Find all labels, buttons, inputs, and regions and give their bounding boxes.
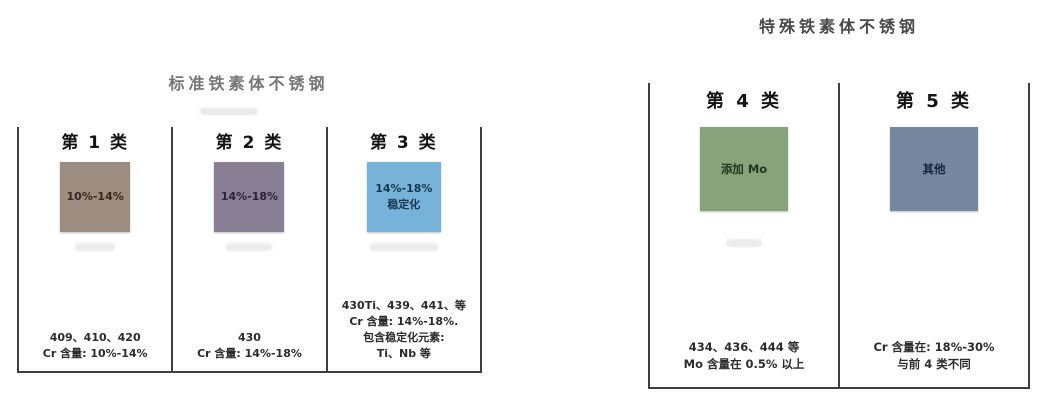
class-4-notes: 434、436、444 等 Mo 含量在 0.5% 以上 xyxy=(653,339,835,374)
note-line: 430 xyxy=(176,330,322,346)
note-line: Cr 含量: 14%-18% xyxy=(176,346,322,362)
class-5-header: 第 5 类 xyxy=(896,83,972,113)
class-4-header: 第 4 类 xyxy=(706,83,782,113)
class-5-notes: Cr 含量在: 18%-30% 与前 4 类不同 xyxy=(843,339,1025,374)
note-line: Cr 含量: 10%-14% xyxy=(22,346,168,362)
faded-text-artifact xyxy=(226,243,272,251)
note-line: 与前 4 类不同 xyxy=(843,356,1025,373)
class-1-color-box: 10%-14% xyxy=(60,162,130,232)
special-ferritic-title: 特殊铁素体不锈钢 xyxy=(648,13,1030,37)
class-2-notes: 430 Cr 含量: 14%-18% xyxy=(176,330,322,362)
note-line: 409、410、420 xyxy=(22,330,168,346)
class-1-box-label: 10%-14% xyxy=(67,189,124,205)
class-1-column: 第 1 类 10%-14% 409、410、420 Cr 含量: 10%-14% xyxy=(19,127,173,371)
class-3-box-label: 稳定化 xyxy=(387,197,420,213)
standard-ferritic-panel: 第 1 类 10%-14% 409、410、420 Cr 含量: 10%-14%… xyxy=(17,127,482,373)
class-3-column: 第 3 类 14%-18% 稳定化 430Ti、439、441、等 Cr 含量:… xyxy=(328,127,480,371)
faded-text-artifact xyxy=(200,108,258,115)
class-1-notes: 409、410、420 Cr 含量: 10%-14% xyxy=(22,330,168,362)
ferritic-stainless-classification-diagram: 标准铁素体不锈钢 第 1 类 10%-14% 409、410、420 Cr 含量… xyxy=(0,0,1042,408)
class-3-notes: 430Ti、439、441、等 Cr 含量: 14%-18%. 包含稳定化元素:… xyxy=(331,298,477,362)
faded-text-artifact xyxy=(75,243,115,251)
note-line: 434、436、444 等 xyxy=(653,339,835,356)
class-3-color-box: 14%-18% 稳定化 xyxy=(367,162,441,232)
note-line: Ti、Nb 等 xyxy=(331,346,477,362)
faded-text-artifact xyxy=(370,243,438,251)
class-3-box-label: 14%-18% xyxy=(375,181,432,197)
note-line: Cr 含量在: 18%-30% xyxy=(843,339,1025,356)
class-2-color-box: 14%-18% xyxy=(214,162,284,232)
class-3-header: 第 3 类 xyxy=(370,127,438,153)
class-5-color-box: 其他 xyxy=(890,127,978,211)
class-4-color-box: 添加 Mo xyxy=(700,127,788,211)
class-4-column: 第 4 类 添加 Mo 434、436、444 等 Mo 含量在 0.5% 以上 xyxy=(650,83,840,387)
note-line: Mo 含量在 0.5% 以上 xyxy=(653,356,835,373)
note-line: 包含稳定化元素: xyxy=(331,330,477,346)
class-1-header: 第 1 类 xyxy=(61,127,129,153)
note-line: Cr 含量: 14%-18%. xyxy=(331,314,477,330)
note-line: 430Ti、439、441、等 xyxy=(331,298,477,314)
class-2-header: 第 2 类 xyxy=(216,127,284,153)
special-ferritic-panel: 第 4 类 添加 Mo 434、436、444 等 Mo 含量在 0.5% 以上… xyxy=(648,83,1030,389)
class-5-box-label: 其他 xyxy=(923,161,946,178)
standard-ferritic-title: 标准铁素体不锈钢 xyxy=(17,70,480,94)
class-5-column: 第 5 类 其他 Cr 含量在: 18%-30% 与前 4 类不同 xyxy=(840,83,1028,387)
faded-text-artifact xyxy=(726,239,762,247)
class-4-box-label: 添加 Mo xyxy=(721,161,767,178)
class-2-box-label: 14%-18% xyxy=(221,189,278,205)
class-2-column: 第 2 类 14%-18% 430 Cr 含量: 14%-18% xyxy=(173,127,327,371)
